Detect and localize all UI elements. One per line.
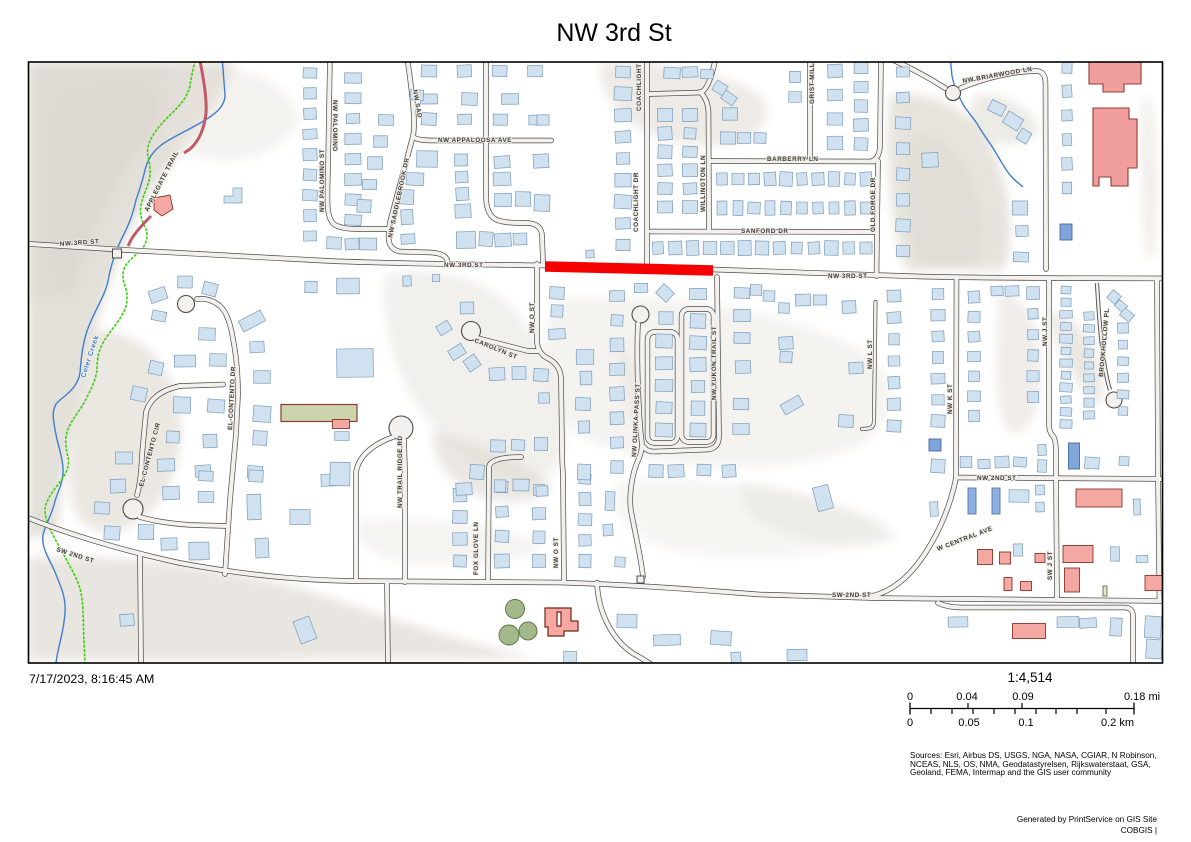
svg-text:NW 2ND ST: NW 2ND ST [977, 475, 1017, 482]
svg-text:BARBERRY LN: BARBERRY LN [767, 156, 819, 163]
svg-text:NW J ST: NW J ST [1042, 317, 1049, 346]
svg-text:NW O ST: NW O ST [553, 537, 560, 568]
svg-text:COACHLIGHT DR: COACHLIGHT DR [633, 172, 640, 232]
svg-text:SW J ST: SW J ST [1047, 551, 1054, 580]
svg-text:NW PALOMINO ST: NW PALOMINO ST [319, 149, 326, 212]
svg-text:NW 3RD ST: NW 3RD ST [828, 273, 868, 280]
svg-text:NW PALOMINO: NW PALOMINO [331, 100, 338, 152]
svg-text:NW YUKON TRAIL ST: NW YUKON TRAIL ST [711, 326, 718, 400]
svg-text:NW 3RD ST: NW 3RD ST [444, 262, 484, 269]
svg-text:SANFORD DR: SANFORD DR [741, 228, 788, 235]
svg-text:OLD FORGE DR: OLD FORGE DR [870, 177, 877, 232]
svg-text:NW K ST: NW K ST [947, 384, 954, 414]
svg-text:NW L ST: NW L ST [867, 339, 874, 369]
svg-text:GRIST MILL: GRIST MILL [809, 63, 816, 104]
svg-text:NW TRAIL RIDGE RD: NW TRAIL RIDGE RD [397, 435, 404, 508]
svg-text:WILLINGTON LN: WILLINGTON LN [700, 155, 707, 212]
svg-text:FOX GLOVE LN: FOX GLOVE LN [473, 522, 480, 575]
svg-text:NW BRIARWOOD LN: NW BRIARWOOD LN [962, 66, 1033, 85]
svg-text:W CENTRAL AVE: W CENTRAL AVE [936, 525, 993, 553]
svg-text:NW APPALOOSA AVE: NW APPALOOSA AVE [438, 137, 512, 144]
svg-text:COACHLIGHT: COACHLIGHT [636, 64, 643, 111]
svg-text:SW 2ND ST: SW 2ND ST [832, 592, 871, 599]
svg-text:NW O ST: NW O ST [529, 302, 536, 333]
